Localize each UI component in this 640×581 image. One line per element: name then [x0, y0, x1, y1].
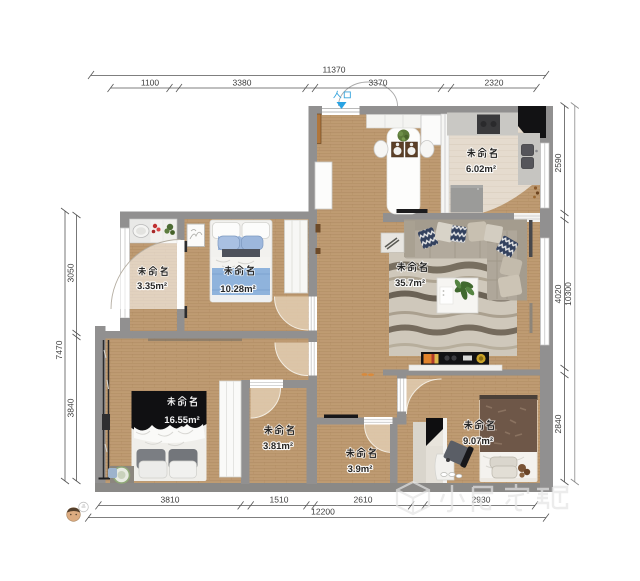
svg-text:6.02m²: 6.02m² — [466, 164, 496, 175]
svg-text:2840: 2840 — [553, 414, 563, 433]
svg-text:2320: 2320 — [485, 78, 504, 88]
svg-text:16.55m²: 16.55m² — [164, 415, 199, 426]
svg-text:2610: 2610 — [354, 495, 373, 505]
svg-text:10.28m²: 10.28m² — [220, 284, 255, 295]
svg-text:3840: 3840 — [66, 398, 76, 417]
svg-text:35.7m²: 35.7m² — [395, 278, 425, 289]
svg-text:3.35m²: 3.35m² — [137, 281, 167, 292]
svg-text:3380: 3380 — [233, 78, 252, 88]
svg-text:1510: 1510 — [270, 495, 289, 505]
svg-text:3370: 3370 — [369, 78, 388, 88]
svg-text:9.07m²: 9.07m² — [463, 436, 493, 447]
svg-text:1100: 1100 — [141, 78, 160, 88]
svg-text:3.81m²: 3.81m² — [263, 441, 293, 452]
svg-text:3.9m²: 3.9m² — [348, 464, 373, 475]
svg-text:2590: 2590 — [553, 153, 563, 172]
svg-text:4020: 4020 — [553, 284, 563, 303]
svg-text:7470: 7470 — [54, 340, 64, 359]
svg-text:3050: 3050 — [66, 263, 76, 282]
svg-text:12200: 12200 — [311, 507, 335, 517]
svg-text:11370: 11370 — [322, 65, 345, 75]
svg-text:3810: 3810 — [161, 495, 180, 505]
